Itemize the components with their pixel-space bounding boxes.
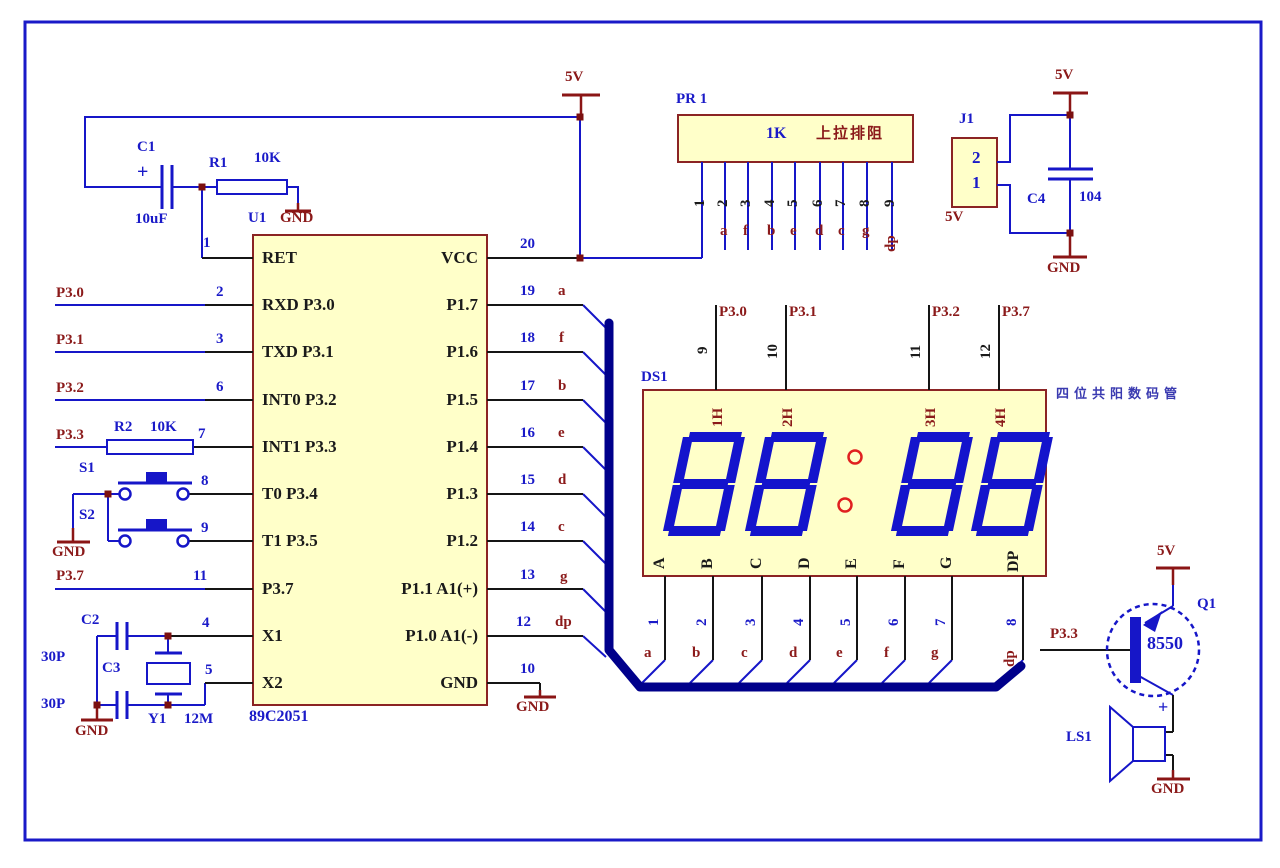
pr1-pinnum-5: 5 <box>786 200 801 208</box>
u1-pinnum-1: 1 <box>203 236 211 251</box>
ls1-plus-sign: + <box>1158 698 1168 716</box>
pr1-seg-d: d <box>815 224 823 239</box>
q1-base-bar <box>1130 617 1141 683</box>
u1-pin-vcc: VCC <box>356 249 478 266</box>
u1-pinnum-18: 18 <box>520 331 535 346</box>
c3-value: 30P <box>41 697 65 712</box>
j1-ref: J1 <box>959 112 974 127</box>
u1-pin-gnd: GND <box>356 674 478 691</box>
c4-capacitor <box>1048 169 1093 179</box>
u1-pin-int0: INT0 P3.2 <box>262 391 337 408</box>
ds1-net-p32: P3.2 <box>932 305 960 320</box>
u1-ref: U1 <box>248 211 266 226</box>
ds1-botpin-4: 4 <box>792 619 807 627</box>
u1-pin-p10: P1.0 A1(-) <box>356 627 478 644</box>
v5-label-j1: 5V <box>945 210 963 225</box>
v5-label-q1: 5V <box>1157 544 1175 559</box>
c2-value: 30P <box>41 650 65 665</box>
u1-pin-t0: T0 P3.4 <box>262 485 318 502</box>
ds1-seg-C: C <box>749 557 765 569</box>
u1-pinnum-15: 15 <box>520 473 535 488</box>
c3-capacitor <box>117 691 127 719</box>
pr1-pinnum-9: 9 <box>883 200 898 208</box>
u1-pin-p13: P1.3 <box>356 485 478 502</box>
u1-pinnum-17: 17 <box>520 379 535 394</box>
u1-pinnum-12: 12 <box>516 615 531 630</box>
ds1-digit-label-4h: 4H <box>994 408 1009 427</box>
pr1-seg-e: e <box>790 224 797 239</box>
pr1-pinnum-3: 3 <box>739 200 754 208</box>
net-label-p37: P3.7 <box>56 569 84 584</box>
ds1-seg-D: D <box>797 557 813 569</box>
ds1-seg-F: F <box>892 559 908 569</box>
u1-pin-txd: TXD P3.1 <box>262 343 334 360</box>
net-label-p33: P3.3 <box>56 428 84 443</box>
u1-pin-p37: P3.7 <box>262 580 294 597</box>
c1-plus-sign: + <box>137 162 148 182</box>
ds1-botpin-1: 1 <box>647 619 662 627</box>
ds1-botseg-d: d <box>789 646 797 661</box>
ds1-toppin-9: 9 <box>696 347 711 355</box>
u1-pin-int1: INT1 P3.3 <box>262 438 337 455</box>
u1-pin-x1: X1 <box>262 627 283 644</box>
ds1-net-p31: P3.1 <box>789 305 817 320</box>
pr1-seg-dp: dp <box>884 235 899 252</box>
u1-pin-p14: P1.4 <box>356 438 478 455</box>
seg-label-f: f <box>559 331 564 346</box>
ds1-toppin-10: 10 <box>766 344 781 359</box>
u1-pinnum-7: 7 <box>198 427 206 442</box>
net-label-p30: P3.0 <box>56 286 84 301</box>
u1-pinnum-10: 10 <box>520 662 535 677</box>
ds1-toppin-12: 12 <box>979 344 994 359</box>
s2-button <box>118 519 192 547</box>
ds1-botseg-dp: dp <box>1003 650 1018 667</box>
ds1-net-p37: P3.7 <box>1002 305 1030 320</box>
gnd-label-crystal: GND <box>75 724 108 739</box>
ds1-note: 四位共阳数码管 <box>1056 387 1182 400</box>
seg-label-a: a <box>558 284 566 299</box>
pr1-ref: PR 1 <box>676 92 707 107</box>
s1-ref: S1 <box>79 461 95 476</box>
ls1-speaker <box>1110 707 1165 781</box>
r2-ref: R2 <box>114 420 132 435</box>
ds1-seg-A: A <box>652 557 668 569</box>
u1-pinnum-8: 8 <box>201 474 209 489</box>
pr1-note: 上拉排阻 <box>816 127 884 142</box>
u1-pinnum-4: 4 <box>202 616 210 631</box>
seg-label-e: e <box>558 426 565 441</box>
gnd-label-c4: GND <box>1047 261 1080 276</box>
u1-pin-p12: P1.2 <box>356 532 478 549</box>
gnd-label-ls1: GND <box>1151 782 1184 797</box>
ds1-botpin-5: 5 <box>839 619 854 627</box>
y1-ref: Y1 <box>148 712 166 727</box>
ds1-botseg-f: f <box>884 646 889 661</box>
y1-value: 12M <box>184 712 213 727</box>
c1-capacitor <box>162 165 172 209</box>
net-label-p31: P3.1 <box>56 333 84 348</box>
s1-button <box>118 472 192 500</box>
c2-capacitor <box>117 622 127 650</box>
pr1-seg-c: c <box>838 224 845 239</box>
s2-ref: S2 <box>79 508 95 523</box>
u1-pinnum-13: 13 <box>520 568 535 583</box>
ds1-botpin-7: 7 <box>934 619 949 627</box>
pr1-pinnum-7: 7 <box>834 200 849 208</box>
seg-label-g: g <box>560 570 568 585</box>
u1-pin-p16: P1.6 <box>356 343 478 360</box>
u1-pin-ret: RET <box>262 249 297 266</box>
u1-pinnum-19: 19 <box>520 284 535 299</box>
v5-label-c4: 5V <box>1055 68 1073 83</box>
ds1-toppin-11: 11 <box>909 345 924 359</box>
r2-resistor <box>107 440 193 454</box>
ds1-botpin-3: 3 <box>744 619 759 627</box>
pr1-seg-f: f <box>743 224 748 239</box>
u1-pinnum-6: 6 <box>216 380 224 395</box>
ds1-digit-label-3h: 3H <box>924 408 939 427</box>
ds1-digit-label-1h: 1H <box>711 408 726 427</box>
r2-value: 10K <box>150 420 177 435</box>
ls1-ref: LS1 <box>1066 730 1092 745</box>
u1-pinnum-14: 14 <box>520 520 535 535</box>
pr1-seg-g: g <box>862 224 870 239</box>
pr1-seg-b: b <box>767 224 775 239</box>
ds1-seg-E: E <box>844 558 860 569</box>
v5-label-top: 5V <box>565 70 583 85</box>
u1-pinnum-3: 3 <box>216 332 224 347</box>
c4-value: 104 <box>1079 190 1102 205</box>
u1-pin-x2: X2 <box>262 674 283 691</box>
c3-ref: C3 <box>102 661 120 676</box>
j1-pin1: 1 <box>972 174 981 191</box>
ds1-botseg-e: e <box>836 646 843 661</box>
r1-value: 10K <box>254 151 281 166</box>
u1-pinnum-2: 2 <box>216 285 224 300</box>
pr1-pinnum-6: 6 <box>811 200 826 208</box>
j1-pin2: 2 <box>972 149 981 166</box>
ds1-botpin-2: 2 <box>695 619 710 627</box>
u1-pinnum-9: 9 <box>201 521 209 536</box>
ds1-digit-label-2h: 2H <box>781 408 796 427</box>
seg-label-dp: dp <box>555 615 572 630</box>
pr1-seg-a: a <box>720 224 728 239</box>
seg-label-d: d <box>558 473 566 488</box>
ds1-botseg-g: g <box>931 646 939 661</box>
ds1-botseg-b: b <box>692 646 700 661</box>
ds1-botseg-c: c <box>741 646 748 661</box>
pr1-value: 1K <box>766 126 786 142</box>
gnd-label-r1: GND <box>280 211 313 226</box>
ds1-botseg-a: a <box>644 646 652 661</box>
u1-pinnum-5: 5 <box>205 663 213 678</box>
q1-ref: Q1 <box>1197 597 1216 612</box>
u1-pinnum-16: 16 <box>520 426 535 441</box>
schematic-canvas: C1 + 10uF R1 10K U1 GND 5V RET RXD P3.0 … <box>0 0 1280 868</box>
c1-value: 10uF <box>135 212 168 227</box>
net-label-p33-q1: P3.3 <box>1050 627 1078 642</box>
u1-pinnum-11: 11 <box>193 569 207 584</box>
ds1-botpin-8: 8 <box>1005 619 1020 627</box>
pr1-pinnum-8: 8 <box>858 200 873 208</box>
r1-resistor <box>217 180 287 194</box>
u1-pin-p17: P1.7 <box>356 296 478 313</box>
seg-label-c: c <box>558 520 565 535</box>
net-label-p32: P3.2 <box>56 381 84 396</box>
ds1-seg-B: B <box>700 558 716 569</box>
c4-ref: C4 <box>1027 192 1045 207</box>
q1-value: 8550 <box>1147 634 1183 652</box>
ds1-seg-G: G <box>939 557 955 569</box>
u1-pin-t1: T1 P3.5 <box>262 532 318 549</box>
seg-label-b: b <box>558 379 566 394</box>
ds1-seg-DP: DP <box>1006 551 1022 572</box>
u1-pin-p15: P1.5 <box>356 391 478 408</box>
ds1-net-p30: P3.0 <box>719 305 747 320</box>
pr1-pinnum-1: 1 <box>693 200 708 208</box>
pr1-pinnum-2: 2 <box>716 200 731 208</box>
u1-part-number: 89C2051 <box>249 709 309 725</box>
c1-ref: C1 <box>137 140 155 155</box>
u1-pin-p11: P1.1 A1(+) <box>356 580 478 597</box>
u1-pin-rxd: RXD P3.0 <box>262 296 335 313</box>
u1-pinnum-20: 20 <box>520 237 535 252</box>
gnd-label-switches: GND <box>52 545 85 560</box>
c2-ref: C2 <box>81 613 99 628</box>
gnd-label-u1: GND <box>516 700 549 715</box>
ds1-ref: DS1 <box>641 370 668 385</box>
ds1-botpin-6: 6 <box>887 619 902 627</box>
pr1-pinnum-4: 4 <box>763 200 778 208</box>
r1-ref: R1 <box>209 156 227 171</box>
y1-crystal <box>147 653 190 694</box>
